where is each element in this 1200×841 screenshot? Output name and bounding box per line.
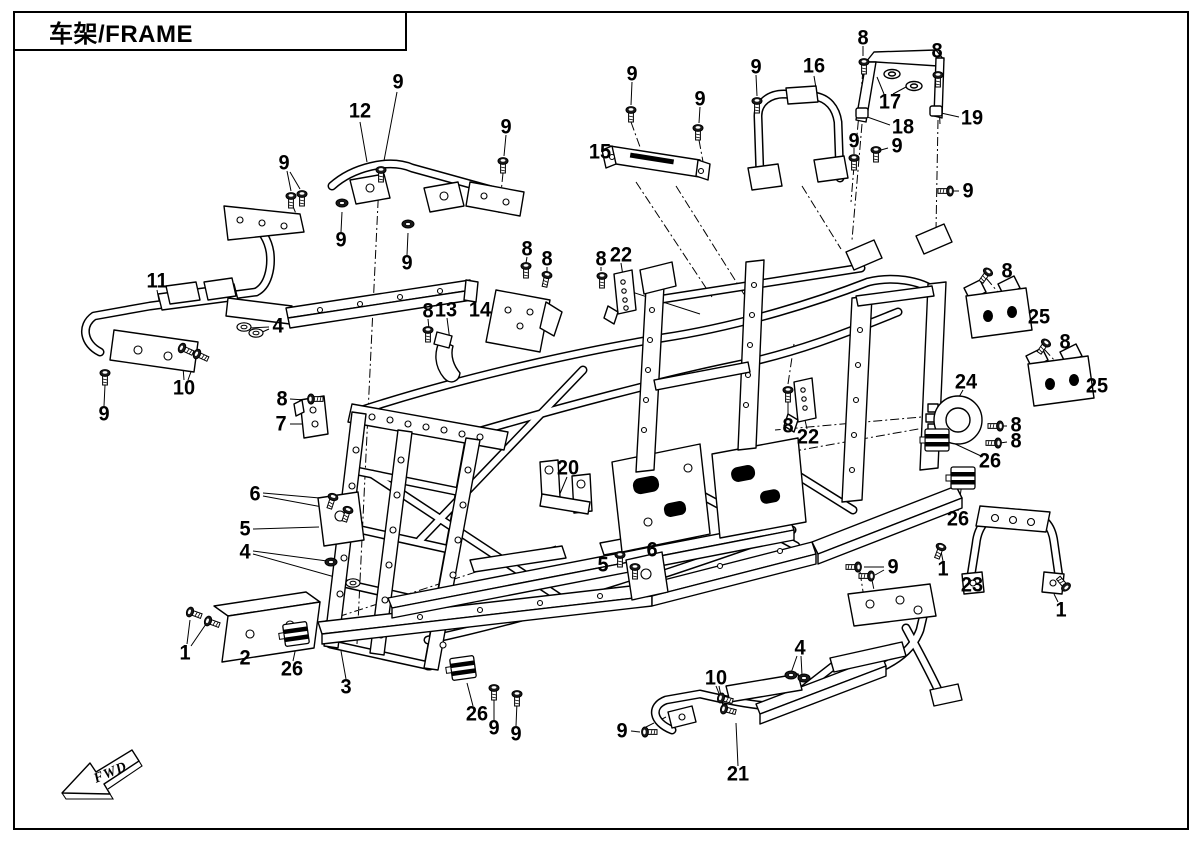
- page-title: 车架/FRAME: [49, 14, 193, 49]
- page-border: [13, 11, 1189, 830]
- title-box: 车架/FRAME: [13, 11, 407, 51]
- parts-diagram-page: FWD 车架/FRAME 912999915999168178181999911…: [0, 0, 1200, 841]
